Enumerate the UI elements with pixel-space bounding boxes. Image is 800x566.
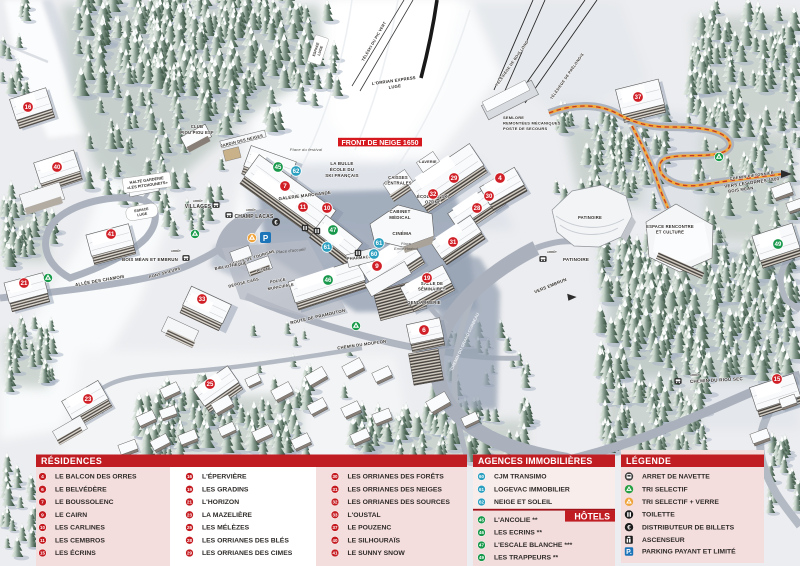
- svg-text:6: 6: [422, 327, 426, 334]
- svg-text:19: 19: [424, 276, 431, 282]
- svg-text:REMONTÉES MÉCANIQUES: REMONTÉES MÉCANIQUES: [503, 121, 561, 126]
- svg-text:60: 60: [479, 474, 484, 479]
- svg-text:LES CARLINES: LES CARLINES: [55, 525, 105, 532]
- svg-text:15: 15: [40, 551, 45, 556]
- svg-text:25: 25: [187, 525, 192, 530]
- svg-text:L'ÉPERVIÈRE: L'ÉPERVIÈRE: [202, 472, 247, 481]
- svg-text:ÉCOLE DU: ÉCOLE DU: [330, 167, 354, 172]
- svg-text:RÉSIDENCES: RÉSIDENCES: [41, 456, 102, 466]
- svg-text:Place: Place: [401, 242, 411, 246]
- svg-text:L'HORIZON: L'HORIZON: [202, 499, 239, 506]
- svg-text:FRONT DE NEIGE 1650: FRONT DE NEIGE 1650: [341, 140, 418, 147]
- svg-text:NEIGE ET SOLEIL: NEIGE ET SOLEIL: [494, 499, 552, 506]
- svg-text:11: 11: [40, 538, 45, 543]
- svg-text:29: 29: [187, 551, 192, 556]
- svg-text:31: 31: [333, 487, 338, 492]
- svg-text:LOGEVAC IMMOBILIER: LOGEVAC IMMOBILIER: [494, 486, 570, 493]
- svg-text:7: 7: [283, 183, 287, 190]
- svg-text:28: 28: [474, 206, 481, 212]
- svg-text:DISTRIBUTEUR DE BILLETS: DISTRIBUTEUR DE BILLETS: [642, 524, 735, 531]
- svg-text:45: 45: [479, 518, 484, 523]
- svg-text:9: 9: [375, 263, 379, 270]
- svg-text:CAISSES: CAISSES: [388, 175, 408, 180]
- svg-text:46: 46: [479, 530, 484, 535]
- svg-text:LES MÉLÈZES: LES MÉLÈZES: [202, 523, 250, 532]
- svg-text:GENDARMERIE: GENDARMERIE: [407, 300, 441, 305]
- svg-text:47: 47: [479, 543, 484, 548]
- svg-text:40: 40: [54, 165, 61, 171]
- svg-text:LES ORRIANES DES NEIGES: LES ORRIANES DES NEIGES: [348, 486, 443, 493]
- svg-text:ARRET DE NAVETTE: ARRET DE NAVETTE: [642, 474, 710, 481]
- svg-text:10: 10: [324, 206, 331, 212]
- svg-text:29: 29: [451, 176, 458, 182]
- svg-text:LE POUZENC: LE POUZENC: [348, 525, 392, 532]
- svg-text:33: 33: [199, 297, 206, 303]
- svg-text:LES GRADINS: LES GRADINS: [202, 486, 249, 493]
- svg-text:LE SILHOURAÏS: LE SILHOURAÏS: [348, 536, 401, 544]
- svg-text:41: 41: [333, 551, 338, 556]
- svg-text:40: 40: [333, 538, 338, 543]
- svg-text:21: 21: [187, 500, 192, 505]
- svg-text:30: 30: [333, 474, 338, 479]
- svg-text:AGENCES IMMOBILIÈRES: AGENCES IMMOBILIÈRES: [478, 456, 592, 466]
- svg-text:15: 15: [774, 377, 781, 383]
- svg-text:VILLAGES: VILLAGES: [185, 204, 212, 210]
- svg-text:MÉDICAL: MÉDICAL: [389, 215, 411, 220]
- svg-text:62: 62: [479, 500, 484, 505]
- svg-text:ASCENSEUR: ASCENSEUR: [642, 537, 685, 544]
- svg-text:SEMLORE: SEMLORE: [503, 115, 524, 120]
- svg-text:LÉGENDE: LÉGENDE: [626, 456, 671, 466]
- svg-text:6: 6: [41, 487, 44, 493]
- svg-text:BOIS MÉAN ET EMBRUN: BOIS MÉAN ET EMBRUN: [122, 257, 178, 262]
- svg-text:LES ORRIANES DES CIMES: LES ORRIANES DES CIMES: [202, 550, 293, 557]
- svg-text:16: 16: [187, 474, 192, 479]
- svg-text:37: 37: [635, 95, 642, 101]
- svg-text:62: 62: [293, 169, 300, 175]
- svg-text:TOILETTE: TOILETTE: [642, 512, 675, 519]
- svg-text:ET CULTURE: ET CULTURE: [656, 230, 684, 235]
- svg-text:61: 61: [376, 241, 383, 247]
- svg-text:CABINET: CABINET: [390, 209, 411, 214]
- svg-text:LES ECRINS **: LES ECRINS **: [494, 530, 542, 537]
- svg-text:37: 37: [333, 525, 338, 530]
- svg-text:LES ORRIANES DES SOURCES: LES ORRIANES DES SOURCES: [348, 499, 451, 506]
- svg-text:P: P: [263, 234, 269, 243]
- svg-text:LE BALCON DES ORRES: LE BALCON DES ORRES: [55, 474, 137, 481]
- svg-text:32: 32: [430, 192, 437, 198]
- svg-text:LE BELVÉDÈRE: LE BELVÉDÈRE: [55, 484, 107, 493]
- svg-text:25: 25: [207, 382, 214, 388]
- svg-text:HÔTELS: HÔTELS: [574, 511, 610, 522]
- svg-text:PATINOIRE: PATINOIRE: [578, 215, 602, 220]
- svg-text:Place du festival: Place du festival: [290, 147, 323, 152]
- svg-text:LA MAZELIÈRE: LA MAZELIÈRE: [202, 510, 252, 519]
- svg-text:33: 33: [333, 512, 338, 517]
- svg-text:21: 21: [21, 281, 28, 287]
- svg-text:41: 41: [108, 232, 115, 238]
- svg-text:4: 4: [41, 474, 44, 480]
- svg-text:4: 4: [498, 175, 502, 182]
- svg-text:61: 61: [479, 487, 484, 492]
- svg-text:11: 11: [300, 205, 307, 211]
- svg-text:49: 49: [775, 242, 782, 248]
- svg-text:CINÉMA: CINÉMA: [392, 229, 412, 236]
- svg-text:SÉMINAIRES: SÉMINAIRES: [418, 287, 446, 292]
- svg-text:POSTE DE SECOURS: POSTE DE SECOURS: [503, 126, 547, 131]
- svg-text:23: 23: [187, 512, 192, 517]
- svg-text:TRI SELECTIF: TRI SELECTIF: [642, 486, 688, 493]
- svg-text:7: 7: [41, 500, 44, 506]
- svg-text:PIOU PIOU ESF: PIOU PIOU ESF: [180, 130, 214, 135]
- svg-text:CENTRALES: CENTRALES: [384, 181, 411, 186]
- svg-text:LAVERIE: LAVERIE: [419, 160, 437, 164]
- svg-text:LES ORRIANES DES BLÉS: LES ORRIANES DES BLÉS: [202, 535, 289, 544]
- svg-text:€: €: [627, 525, 631, 532]
- svg-text:19: 19: [187, 487, 192, 492]
- svg-text:LES ÉCRINS: LES ÉCRINS: [55, 548, 96, 557]
- svg-text:60: 60: [371, 252, 378, 258]
- svg-text:LE SUNNY SNOW: LE SUNNY SNOW: [348, 550, 406, 557]
- svg-text:LES ORRIANES DES FORÊTS: LES ORRIANES DES FORÊTS: [348, 472, 445, 481]
- svg-text:16: 16: [25, 105, 32, 111]
- svg-text:LA BULLE: LA BULLE: [330, 161, 353, 166]
- svg-text:46: 46: [325, 278, 332, 284]
- svg-text:49: 49: [479, 555, 484, 560]
- svg-text:30: 30: [486, 194, 493, 200]
- svg-text:10: 10: [40, 525, 45, 530]
- svg-text:PATINOIRE: PATINOIRE: [563, 257, 589, 262]
- svg-text:P.: P.: [626, 549, 632, 556]
- svg-text:PARKING PAYANT ET LIMITÉ: PARKING PAYANT ET LIMITÉ: [642, 547, 736, 556]
- svg-text:LES CEMBROS: LES CEMBROS: [55, 537, 105, 544]
- svg-text:47: 47: [330, 228, 337, 234]
- svg-text:32: 32: [333, 500, 338, 505]
- svg-text:L'OUSTAL: L'OUSTAL: [348, 512, 381, 519]
- svg-text:SKI FRANÇAIS: SKI FRANÇAIS: [325, 173, 359, 178]
- svg-text:LES TRAPPEURS **: LES TRAPPEURS **: [494, 555, 559, 562]
- svg-text:CJM TRANSIMO: CJM TRANSIMO: [494, 474, 547, 481]
- svg-text:61: 61: [324, 245, 331, 251]
- svg-text:LE CAIRN: LE CAIRN: [55, 512, 87, 519]
- svg-text:31: 31: [450, 240, 457, 246]
- svg-text:23: 23: [85, 397, 92, 403]
- svg-text:ESPACE RENCONTRE: ESPACE RENCONTRE: [646, 224, 694, 229]
- svg-text:9: 9: [41, 512, 44, 518]
- svg-text:45: 45: [275, 165, 282, 171]
- svg-text:L'ANCOLIE **: L'ANCOLIE **: [494, 517, 538, 524]
- svg-text:L'ESCALE BLANCHE ***: L'ESCALE BLANCHE ***: [494, 542, 573, 549]
- svg-text:28: 28: [187, 538, 192, 543]
- svg-text:TRI SELECTIF + VERRE: TRI SELECTIF + VERRE: [642, 499, 719, 506]
- svg-text:CLUB: CLUB: [191, 124, 203, 129]
- svg-text:LE BOUSSOLENC: LE BOUSSOLENC: [55, 499, 114, 506]
- svg-text:Emile Hodoul: Emile Hodoul: [394, 247, 418, 251]
- svg-text:OZONE: OZONE: [425, 200, 441, 205]
- svg-text:CHAMP LACAS: CHAMP LACAS: [234, 214, 274, 220]
